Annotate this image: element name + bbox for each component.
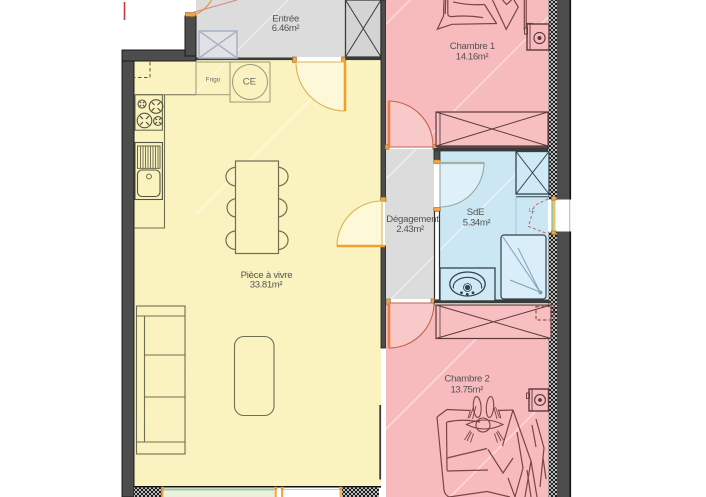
svg-text:14.16m²: 14.16m² [456,52,490,63]
svg-text:SdE: SdE [467,207,484,218]
svg-text:5.34m²: 5.34m² [463,218,492,229]
svg-text:13.75m²: 13.75m² [450,384,484,395]
svg-text:6.46m²: 6.46m² [272,23,301,34]
svg-text:Frigo: Frigo [206,77,221,84]
svg-text:2.43m²: 2.43m² [396,224,425,235]
svg-text:Chambre 1: Chambre 1 [450,41,495,52]
svg-text:CE: CE [243,76,256,87]
svg-text:LL: LL [529,208,535,214]
svg-text:33.81m²: 33.81m² [250,279,284,290]
svg-text:Chambre 2: Chambre 2 [444,373,489,384]
